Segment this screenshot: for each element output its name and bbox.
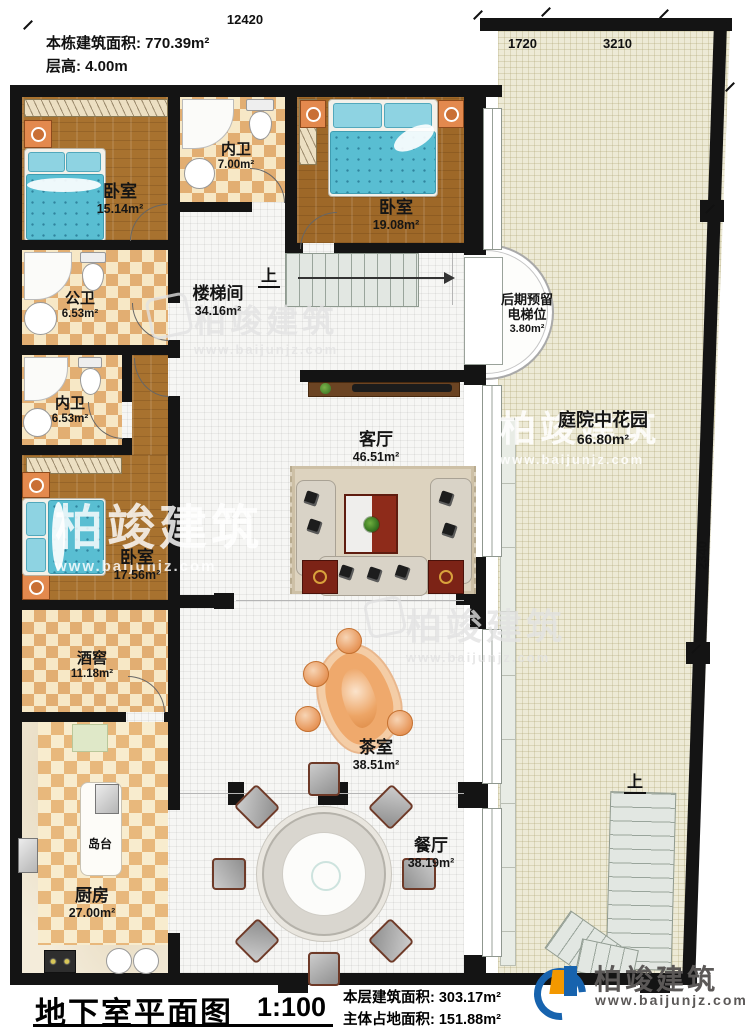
kitchen-island-sink — [95, 784, 119, 814]
room-name: 岛台 — [75, 837, 125, 851]
side-table-left — [302, 560, 338, 594]
bedroom1-pillow-1 — [28, 152, 65, 172]
tea-stool-4 — [387, 710, 413, 736]
garden-top-wall — [480, 18, 732, 31]
wall-bath2-right-a — [122, 355, 132, 402]
label-pubbath: 公卫 6.53m² — [30, 290, 130, 321]
room-name: 客厅 — [326, 430, 426, 450]
room-name: 公卫 — [30, 290, 130, 308]
coffee-table-plant — [364, 517, 379, 532]
tv — [352, 384, 452, 392]
kitchen-stove — [44, 950, 76, 973]
room-name: 卧室 — [346, 198, 446, 218]
stair-direction-arrowhead — [444, 272, 455, 284]
wall-right-seg-3 — [464, 955, 486, 973]
wall-bath1-bedroom2 — [285, 97, 297, 253]
dining-chair-7 — [212, 858, 246, 890]
wall-pubbath-bottom — [10, 345, 180, 355]
side-table-right — [428, 560, 464, 594]
label-bedroom3: 卧室 17.56m² — [87, 548, 187, 583]
room-name: 厨房 — [42, 886, 142, 906]
tea-stool-1 — [336, 628, 362, 654]
note-floor-height: 层高: 4.00m — [46, 55, 128, 76]
kitchen-bowl-1 — [106, 948, 132, 974]
room-name: 卧室 — [70, 182, 170, 202]
label-kitchen: 厨房 27.00m² — [42, 886, 142, 921]
room-name: 电梯位 — [492, 307, 562, 322]
note-floor-area: 本层建筑面积: 303.17m² — [343, 986, 501, 1007]
bedroom1-wardrobe — [24, 99, 168, 117]
watermark-logo-icon-4 — [362, 594, 407, 639]
room-name: 楼梯间 — [168, 284, 268, 304]
stair-hall-stairs — [285, 253, 419, 307]
window-bedroom2 — [483, 108, 502, 250]
bedroom2-pillow-1 — [333, 103, 382, 128]
bedroom3-sheet-fold — [52, 502, 65, 570]
pillar-tea-dining-3 — [458, 782, 488, 808]
room-area: 6.53m² — [20, 413, 120, 427]
room-name: 庭院中花园 — [548, 410, 658, 431]
room-area: 7.00m² — [186, 159, 286, 173]
tea-stool-2 — [303, 661, 329, 687]
stair-direction-line — [298, 277, 444, 279]
label-elevator: 后期预留 电梯位 3.80m² — [492, 292, 562, 336]
note-building-area: 本栋建筑面积: 770.39m² — [46, 32, 209, 53]
room-area: 27.00m² — [42, 906, 142, 921]
wall-leftcol-right-d — [168, 600, 180, 810]
room-area: 19.08m² — [346, 218, 446, 233]
outer-wall-top — [10, 85, 502, 97]
bedroom3-pillow-1 — [26, 502, 46, 536]
wall-bedroom1-bath1 — [168, 97, 180, 240]
window-tea — [482, 629, 502, 784]
dim-right: 2340 — [695, 526, 710, 586]
title-underline — [33, 1024, 333, 1027]
bedroom3-nightstand-1 — [22, 472, 50, 498]
bedroom3-pillow-2 — [26, 538, 46, 572]
wall-bedroom2-bottom-b — [334, 243, 464, 253]
dim-tick-1 — [23, 20, 33, 30]
wall-leftcol-right-e — [168, 933, 180, 973]
garden-stairs-up-label: 上 — [624, 768, 646, 794]
label-living: 客厅 46.51m² — [326, 430, 426, 465]
wall-bedroom3-bottom — [10, 600, 180, 610]
dim-tick-3 — [541, 7, 551, 17]
bedroom2-nightstand-1 — [300, 100, 326, 128]
floorline-living-tea — [236, 600, 464, 601]
room-area: 11.18m² — [42, 668, 142, 682]
brand-url: www.baijunjz.com — [595, 992, 748, 1008]
label-bath2: 内卫 6.53m² — [20, 395, 120, 426]
kitchen-counter-sink — [18, 838, 38, 873]
tea-stool-3 — [295, 706, 321, 732]
wall-bath2-bottom — [10, 445, 132, 455]
room-name: 后期预留 — [492, 292, 562, 307]
label-stairhall: 楼梯间 34.16m² — [168, 284, 268, 319]
wall-living-tea-left — [180, 595, 214, 608]
wall-wine-bottom-a — [22, 712, 126, 722]
room-name: 酒窖 — [42, 650, 142, 668]
room-area: 66.80m² — [548, 431, 658, 448]
label-wine: 酒窖 11.18m² — [42, 650, 142, 681]
label-garden: 庭院中花园 66.80m² — [548, 410, 658, 448]
bedroom2-nightstand-2 — [438, 100, 464, 128]
room-area: 15.14m² — [70, 202, 170, 217]
wall-right-seg-2 — [464, 365, 486, 385]
room-area: 38.19m² — [381, 856, 481, 871]
bedroom1-pillow-2 — [66, 152, 101, 172]
label-dining: 餐厅 38.19m² — [381, 836, 481, 871]
wall-bath1-bottom — [180, 202, 252, 212]
console-plant — [320, 383, 331, 394]
room-area: 38.51m² — [326, 758, 426, 773]
wall-bath2-right-b — [122, 438, 132, 445]
dim-top: 12420 — [185, 12, 305, 27]
room-area: 17.56m² — [87, 568, 187, 583]
bedroom3-nightstand-2 — [22, 574, 50, 600]
room-area: 46.51m² — [326, 450, 426, 465]
room-name: 内卫 — [20, 395, 120, 413]
room-name: 茶室 — [326, 738, 426, 758]
pillar-living-tea-mid — [214, 593, 234, 609]
room-name: 卧室 — [87, 548, 187, 568]
room-name: 内卫 — [186, 141, 286, 159]
brand-logo-block-blue — [564, 966, 577, 996]
bedroom1-nightstand — [24, 120, 52, 148]
label-bath1: 内卫 7.00m² — [186, 141, 286, 172]
brand-logo — [534, 960, 588, 1014]
dining-table — [262, 812, 386, 936]
wall-hall-living — [300, 370, 464, 382]
bath1-toilet-tank — [246, 99, 274, 111]
kitchen-cutting-board — [72, 724, 108, 752]
label-bedroom1: 卧室 15.14m² — [70, 182, 170, 217]
room-area: 34.16m² — [168, 304, 268, 319]
room-area: 6.53m² — [30, 308, 130, 322]
window-living — [482, 385, 502, 557]
kitchen-bowl-2 — [133, 948, 159, 974]
bath2-toilet-tank — [78, 357, 102, 368]
brand-logo-swoosh — [523, 957, 596, 1030]
garden-wall-pier-1 — [700, 200, 724, 222]
note-footprint-area: 主体占地面积: 151.88m² — [343, 1008, 501, 1029]
label-island: 岛台 — [75, 837, 125, 851]
label-bedroom2: 卧室 19.08m² — [346, 198, 446, 233]
wall-bedroom1-bottom — [10, 240, 180, 250]
label-tea: 茶室 38.51m² — [326, 738, 426, 773]
window-dining — [482, 808, 502, 957]
coffee-table — [344, 494, 398, 554]
dim-garden-right: 3210 — [585, 36, 650, 51]
plan-scale: 1:100 — [257, 992, 326, 1023]
pubbath-toilet-tank — [80, 252, 106, 263]
garden-deck-strip — [500, 418, 516, 966]
room-area: 3.80m² — [492, 323, 562, 336]
dim-garden-left: 1720 — [495, 36, 550, 51]
wall-leftcol-right-b — [168, 340, 180, 358]
dining-chair-5 — [308, 952, 340, 986]
floor-plan-canvas: 上 — [0, 0, 750, 1035]
room-name: 餐厅 — [381, 836, 481, 856]
